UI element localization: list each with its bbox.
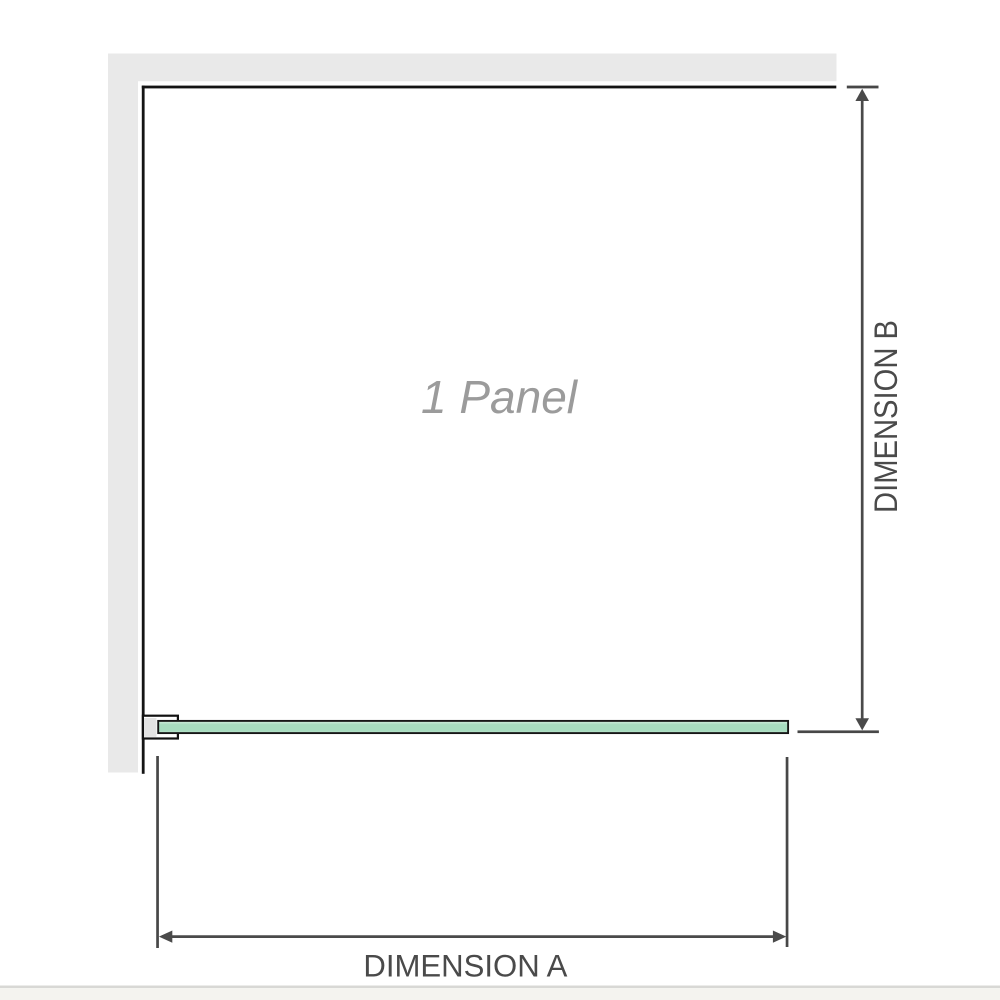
svg-text:DIMENSION B: DIMENSION B bbox=[868, 320, 904, 513]
svg-text:1 Panel: 1 Panel bbox=[421, 371, 579, 423]
svg-text:DIMENSION A: DIMENSION A bbox=[363, 949, 567, 984]
